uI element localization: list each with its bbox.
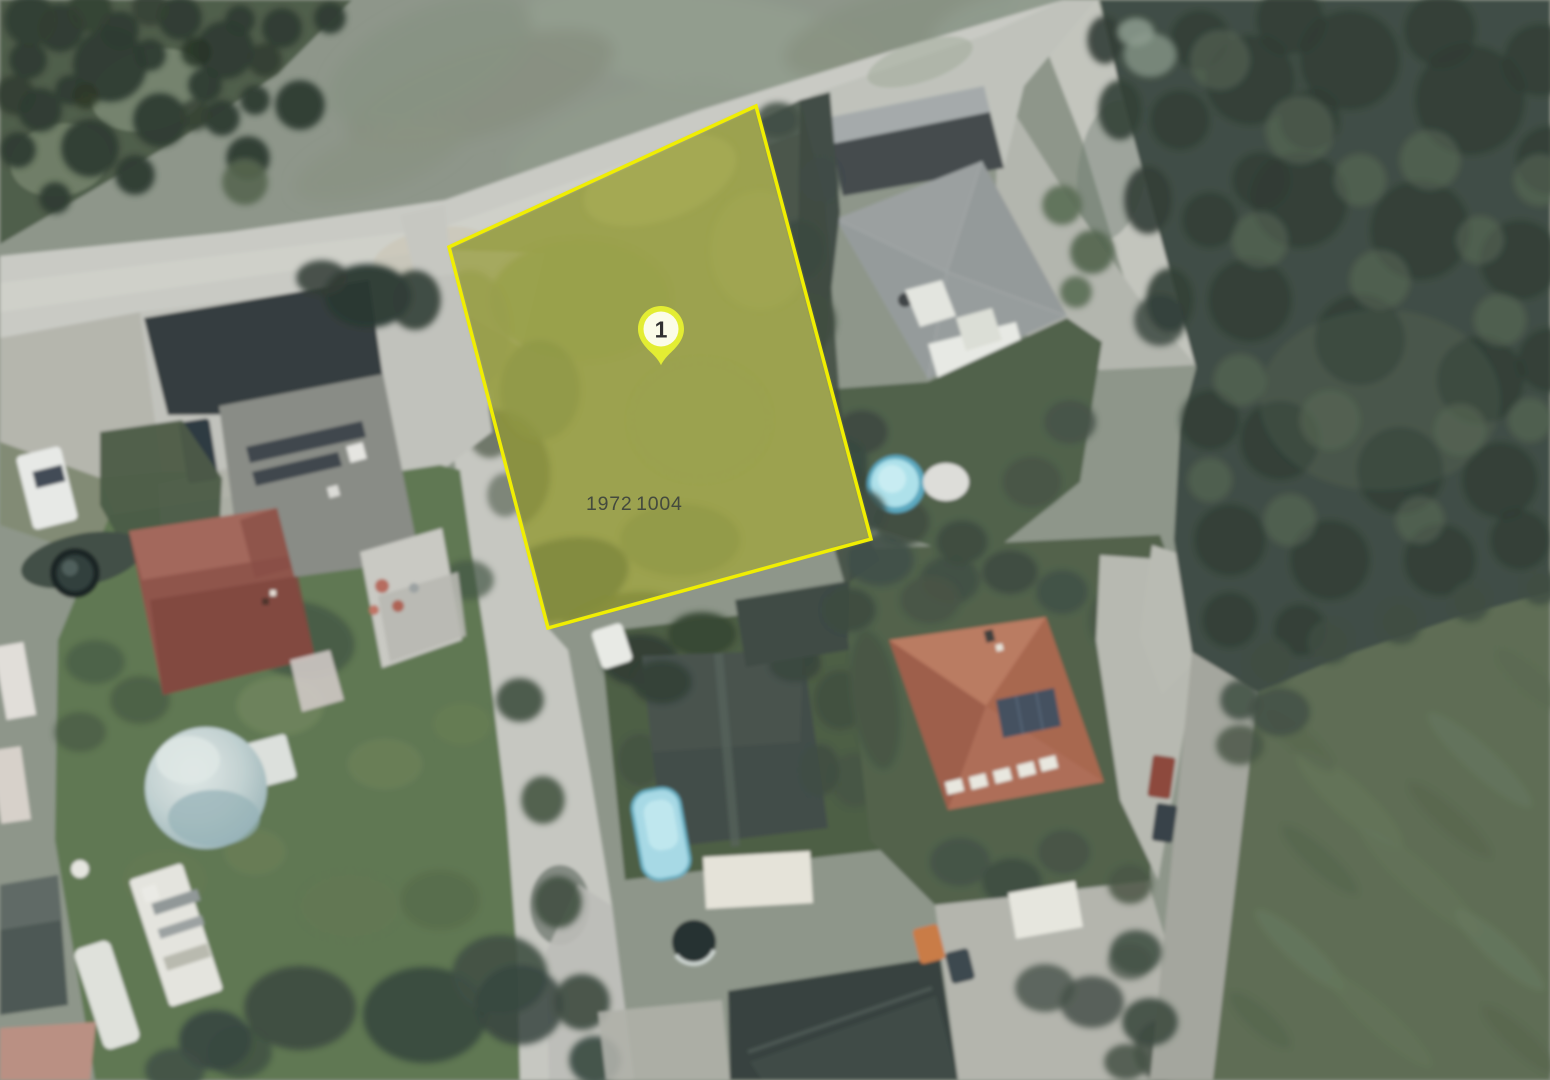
svg-text:1: 1 bbox=[655, 317, 668, 343]
